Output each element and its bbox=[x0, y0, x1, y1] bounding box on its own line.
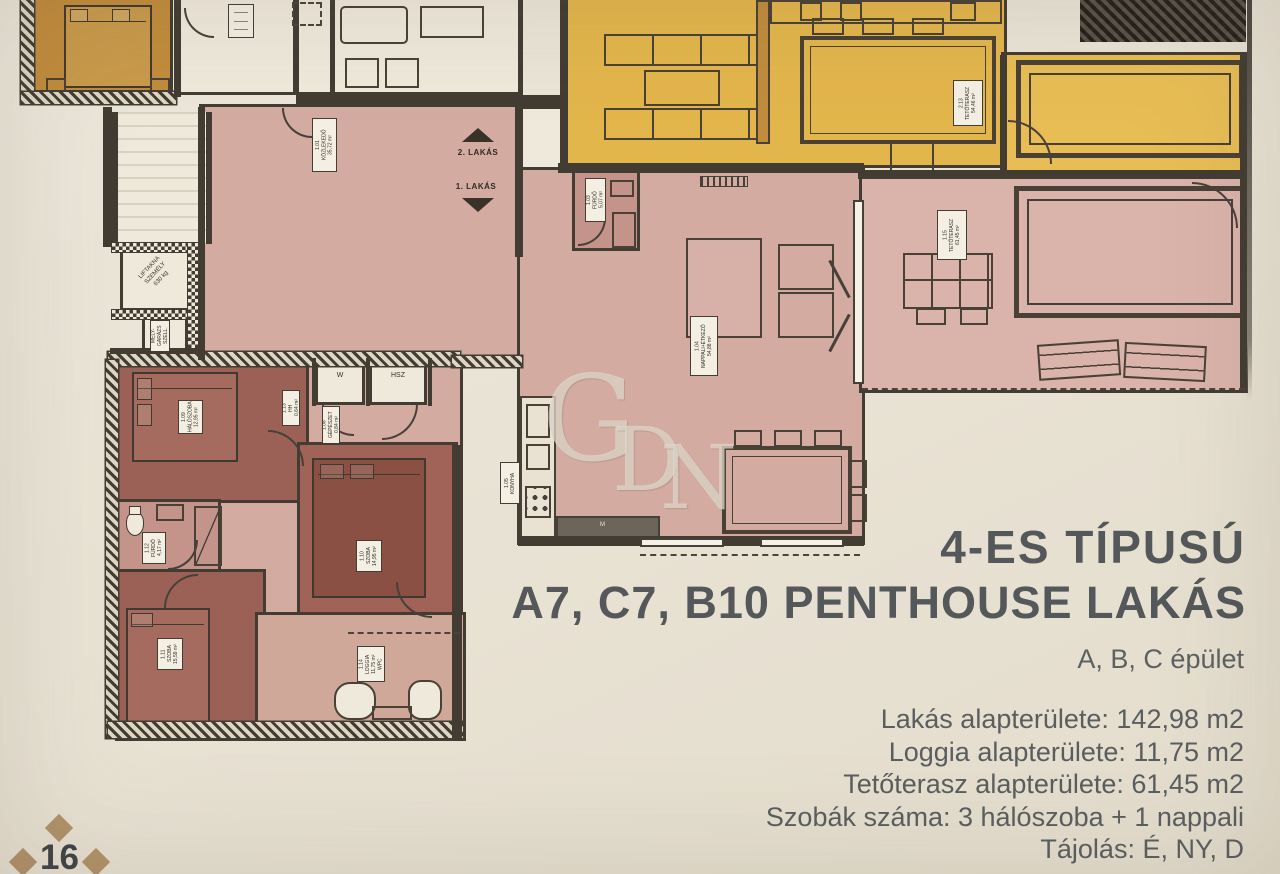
stairs-label-down: 1. LAKÁS bbox=[441, 182, 511, 191]
pillow bbox=[131, 613, 153, 627]
sun-lounger bbox=[1037, 339, 1121, 381]
wall-hatched-kitchen-gap bbox=[452, 356, 522, 367]
detail-line-orientation: Tájolás: É, NY, D bbox=[766, 833, 1244, 866]
chair bbox=[814, 430, 842, 447]
pillow bbox=[137, 404, 152, 426]
window-living-bottom-1 bbox=[640, 538, 724, 547]
plan-units-title: A7, C7, B10 PENTHOUSE LAKÁS bbox=[511, 577, 1246, 629]
label-szoba-3: 1.11 SZOBA 15,59 m² bbox=[157, 638, 183, 670]
detail-line-rooms: Szobák száma: 3 hálószoba + 1 nappali bbox=[766, 801, 1244, 834]
label-nappali: 1.04 NAPPALI+ÉTKEZŐ 54,88 m² bbox=[690, 316, 718, 376]
room-wc bbox=[318, 362, 362, 402]
nightstand bbox=[46, 78, 66, 92]
chair bbox=[850, 460, 867, 488]
bathtub bbox=[340, 6, 408, 44]
label-halo: 1.09 HÁLÓSZOBA 12,95 m² bbox=[178, 400, 203, 434]
brochure-page: M 2. LAKÁS 1. LAKÁS 1.01 KÖZLEKEDŐ bbox=[0, 0, 1280, 874]
divider-orange bbox=[756, 0, 770, 144]
dashed-loggia-edge bbox=[348, 632, 460, 634]
washbasin bbox=[610, 180, 634, 197]
sun-lounger bbox=[1123, 342, 1207, 382]
apartment-details: Lakás alapterülete: 142,98 m2 Loggia ala… bbox=[766, 703, 1244, 866]
wall-tech-1 bbox=[312, 358, 316, 406]
label-furdo-2: 1.12 FÜRDŐ 4,17 m² bbox=[142, 532, 166, 564]
shower bbox=[194, 506, 222, 566]
label-gepeszet: 1.08 GÉPÉSZET 0,84 m² bbox=[322, 406, 340, 444]
building-subtitle: A, B, C épület bbox=[1077, 644, 1244, 675]
sofa-neighbor-1 bbox=[604, 34, 760, 66]
dashed-wardrobe-outline bbox=[292, 2, 322, 26]
wall-right-edge bbox=[1240, 55, 1247, 392]
arrow-down-icon bbox=[462, 198, 494, 212]
dashed-terrace-edge bbox=[862, 388, 1245, 390]
wall-wing-right bbox=[452, 445, 462, 738]
wall-hatched-left-top bbox=[21, 0, 34, 104]
hob-neighbor bbox=[840, 2, 862, 21]
label-tetoterasz-1: 1.15 TETŐTERASZ 61,45 m² bbox=[937, 210, 967, 260]
skylight-pool-upper bbox=[1016, 60, 1244, 158]
armchair bbox=[778, 244, 834, 290]
washbasin bbox=[156, 504, 184, 521]
stairwell bbox=[112, 112, 212, 244]
appliance bbox=[385, 58, 419, 88]
page-number: 16 bbox=[40, 838, 79, 874]
wall-stairwell-left bbox=[103, 107, 112, 247]
wall-hatched-wing-bottom bbox=[108, 722, 463, 738]
label-szoba-2: 1.10 SZOBA 14,95 m² bbox=[356, 540, 382, 572]
photo-right-edge bbox=[1247, 0, 1252, 400]
pillow bbox=[137, 378, 152, 400]
wall-tech-3 bbox=[428, 358, 432, 406]
wall-orange-right bbox=[174, 0, 181, 97]
wall-yellow-left bbox=[560, 0, 568, 170]
loggia-chair-right bbox=[408, 680, 442, 720]
washbasin-counter bbox=[420, 6, 484, 38]
wall-yellow-terrace-divider bbox=[1000, 55, 1007, 175]
detail-line-loggia: Loggia alapterülete: 11,75 m2 bbox=[766, 736, 1244, 769]
loggia-chair-left bbox=[334, 682, 376, 720]
wall-neighbor-bathright bbox=[518, 0, 523, 95]
diamond-icon bbox=[9, 848, 37, 874]
plan-type-title: 4-ES TÍPUSÚ bbox=[940, 520, 1246, 574]
coffee-table-neighbor bbox=[644, 70, 720, 106]
label-wc: W bbox=[318, 372, 362, 379]
label-furdo-1: 1.03 FÜRDŐ 5,07 m² bbox=[585, 178, 606, 222]
wall-staircol-right bbox=[515, 107, 523, 257]
wall-neighbor-bathleft bbox=[330, 0, 335, 95]
appliance bbox=[950, 2, 976, 21]
detail-line-area: Lakás alapterülete: 142,98 m2 bbox=[766, 703, 1244, 736]
label-tetoterasz-2: 2.13 TETŐTERASZ 54,46 m² bbox=[953, 80, 983, 126]
window-living-terrace bbox=[853, 200, 864, 384]
label-melygarazs: MÉLY- GARÁZS SZELL. bbox=[150, 320, 170, 352]
bed-2 bbox=[312, 458, 426, 598]
watermark-letter-n: N bbox=[660, 434, 737, 522]
sofa-neighbor-2 bbox=[604, 108, 760, 140]
dining-table-living bbox=[722, 446, 852, 534]
wall-corridor-left bbox=[198, 107, 205, 360]
label-hh: 1.13 HH 0,64 m² bbox=[282, 390, 300, 426]
wall-terrace-top bbox=[858, 170, 1248, 179]
chair bbox=[850, 494, 867, 522]
armchair bbox=[778, 292, 834, 338]
chair bbox=[774, 430, 802, 447]
label-loggia: 1.14 LOGGIA 11,75 m² WPC bbox=[357, 646, 385, 682]
wall-hatched-wing-top bbox=[108, 352, 460, 366]
stairs-label-up: 2. LAKÁS bbox=[443, 148, 513, 157]
pillow bbox=[70, 9, 88, 22]
outdoor-stool bbox=[916, 308, 946, 325]
pillow bbox=[112, 9, 130, 22]
wall-tech-2 bbox=[366, 358, 370, 406]
dishwasher-mark: M bbox=[600, 522, 605, 528]
outdoor-stool bbox=[960, 308, 988, 325]
detail-line-terrace: Tetőterasz alapterülete: 61,45 m2 bbox=[766, 768, 1244, 801]
chair bbox=[734, 430, 762, 447]
outdoor-sofa bbox=[903, 253, 993, 309]
room-shaft bbox=[522, 109, 560, 167]
sink-neighbor bbox=[800, 2, 822, 21]
label-kozlekedo: 1.01 KÖZLEKEDŐ 35,72 m² bbox=[312, 118, 337, 172]
room-corridor bbox=[202, 107, 520, 360]
floor-plan: M 2. LAKÁS 1. LAKÁS 1.01 KÖZLEKEDŐ bbox=[0, 0, 1280, 745]
label-konyha: 1.05 KONYHA bbox=[500, 462, 520, 504]
roof-texture-block bbox=[1080, 0, 1246, 42]
pillow bbox=[350, 464, 374, 479]
wall-hatched-under-orange bbox=[21, 92, 176, 104]
window-living-bottom-2 bbox=[760, 538, 844, 547]
room-hsz bbox=[372, 362, 424, 402]
label-hsz: HSZ bbox=[372, 372, 424, 379]
wall-hatched-wing-left bbox=[106, 360, 118, 738]
wall-yellow-pink-divider bbox=[558, 163, 864, 173]
arrow-up-icon bbox=[462, 128, 494, 142]
stove bbox=[525, 486, 551, 518]
diamond-icon bbox=[82, 848, 110, 874]
appliance bbox=[345, 58, 379, 88]
bathtub-small bbox=[612, 212, 636, 248]
nightstand bbox=[150, 78, 170, 92]
label-illegible bbox=[228, 4, 254, 38]
dashed-roof-overhang bbox=[640, 554, 860, 556]
radiator bbox=[700, 176, 748, 187]
pillow bbox=[320, 464, 344, 479]
loggia-table bbox=[372, 706, 412, 720]
wall-corridor-top bbox=[296, 95, 562, 107]
